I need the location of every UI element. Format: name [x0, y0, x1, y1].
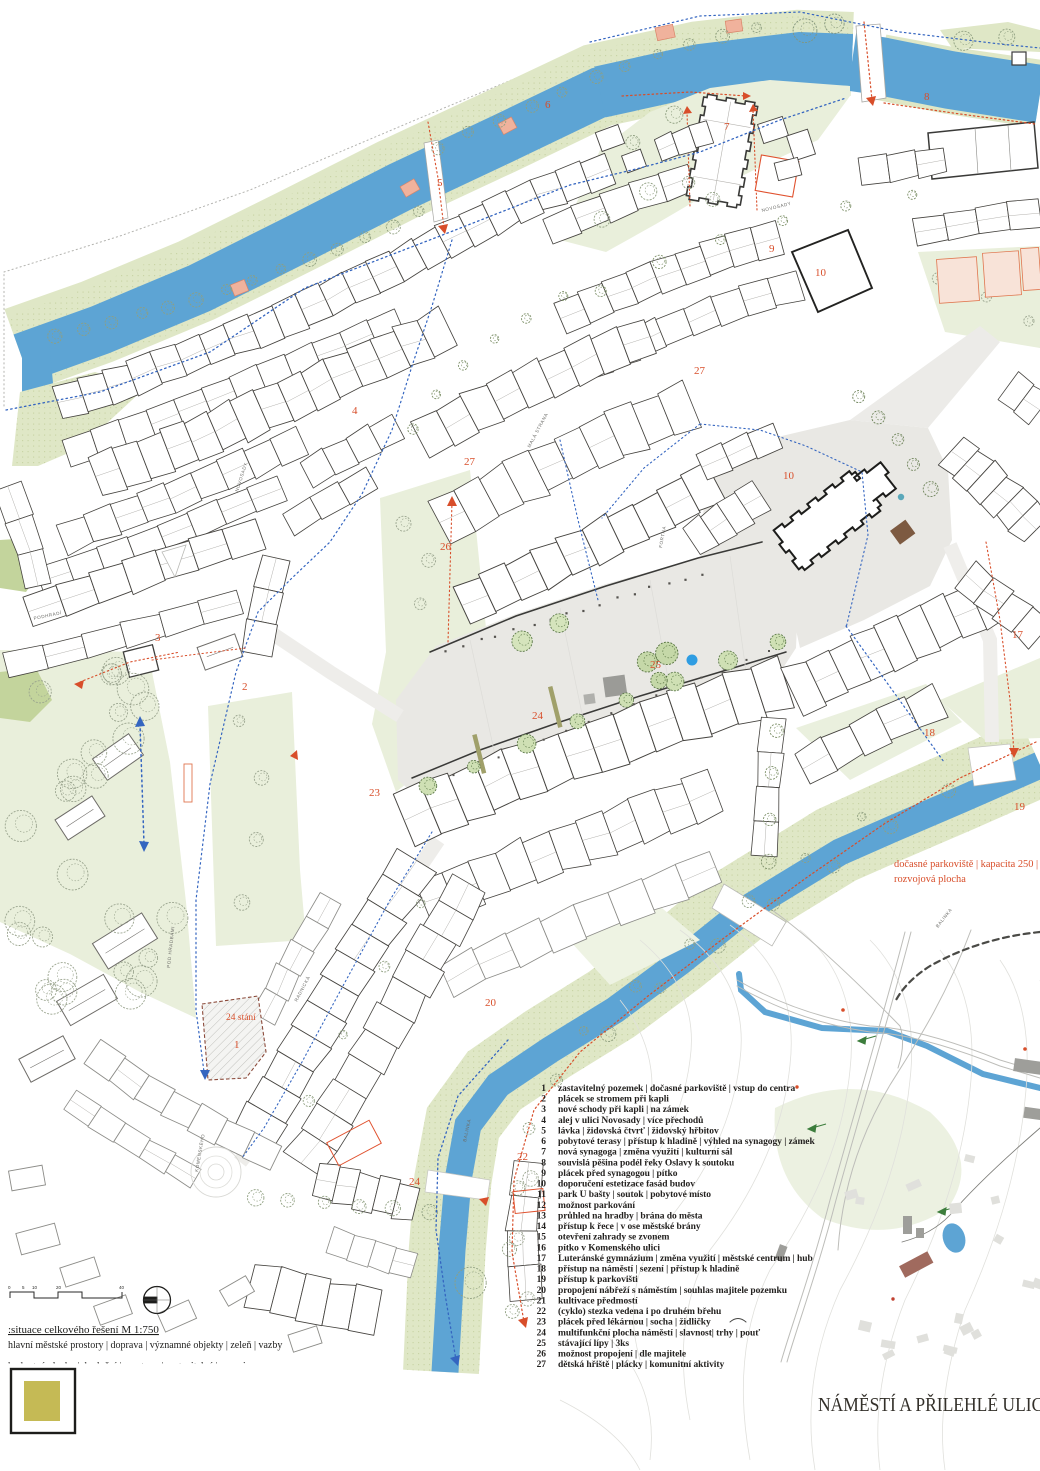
- svg-text:otevření zahrady se zvonem: otevření zahrady se zvonem: [558, 1233, 669, 1243]
- svg-text:park U bašty | soutok | pobyto: park U bašty | soutok | pobytové místo: [558, 1190, 711, 1200]
- svg-text:22: 22: [537, 1307, 547, 1317]
- svg-text:27: 27: [464, 456, 476, 468]
- svg-text:alej v ulici Novosady | více p: alej v ulici Novosady | více přechodů: [558, 1115, 704, 1126]
- svg-text:24 stání: 24 stání: [226, 1013, 256, 1023]
- svg-text:5: 5: [437, 177, 443, 189]
- svg-text:17: 17: [1012, 629, 1024, 641]
- svg-text:kultivace předmostí: kultivace předmostí: [558, 1296, 638, 1306]
- svg-text:27: 27: [537, 1360, 547, 1370]
- svg-text:8: 8: [541, 1158, 546, 1168]
- svg-text:15: 15: [537, 1233, 547, 1243]
- svg-text:5: 5: [541, 1127, 546, 1137]
- svg-text:6: 6: [545, 99, 551, 111]
- svg-text:19: 19: [537, 1275, 547, 1285]
- svg-text:pobytové terasy | přístup k hl: pobytové terasy | přístup k hladině | vý…: [558, 1137, 815, 1147]
- svg-text:2: 2: [541, 1095, 546, 1105]
- svg-text:plácek před lékárnou | socha |: plácek před lékárnou | socha | židličky: [558, 1318, 711, 1328]
- svg-text:23: 23: [537, 1318, 547, 1328]
- svg-text:13: 13: [537, 1211, 547, 1221]
- svg-text:24: 24: [409, 1176, 421, 1188]
- svg-text:26: 26: [537, 1350, 547, 1360]
- svg-text:souvislá pěšina podél řeky Osl: souvislá pěšina podél řeky Oslavy k sout…: [558, 1158, 735, 1168]
- svg-text:multifunkční plocha náměstí |: multifunkční plocha náměstí | slavnost| …: [558, 1328, 760, 1338]
- svg-text:22: 22: [517, 1151, 528, 1163]
- svg-text:dětská hřiště | plácky | komun: dětská hřiště | plácky | komunitní aktiv…: [558, 1360, 724, 1370]
- svg-text:plácek se stromem při kapli: plácek se stromem při kapli: [558, 1095, 669, 1105]
- svg-text:Luteránské gymnázium | změna v: Luteránské gymnázium | změna využití | m…: [558, 1254, 813, 1264]
- svg-text:27: 27: [694, 365, 706, 377]
- svg-text:4: 4: [541, 1116, 546, 1126]
- svg-text:přístup k řece | v ose městské: přístup k řece | v ose městské brány: [558, 1222, 701, 1232]
- svg-text:16: 16: [537, 1243, 547, 1253]
- svg-text:2: 2: [242, 681, 248, 693]
- svg-text:10: 10: [537, 1180, 547, 1190]
- svg-text:nové schody při kapli | na zám: nové schody při kapli | na zámek: [558, 1105, 690, 1115]
- svg-text:25: 25: [650, 659, 662, 671]
- svg-text:18: 18: [924, 727, 936, 739]
- svg-text:dočasné parkoviště | kapacita: dočasné parkoviště | kapacita 250 |: [894, 859, 1038, 870]
- svg-text:11: 11: [537, 1190, 546, 1200]
- svg-text:20: 20: [56, 1285, 62, 1290]
- svg-text:21: 21: [537, 1296, 547, 1306]
- svg-text:17: 17: [537, 1254, 547, 1264]
- svg-text:4: 4: [352, 405, 358, 417]
- svg-text:25: 25: [537, 1339, 547, 1349]
- svg-text:NÁMĚSTÍ A PŘILEHLÉ ULICE: NÁMĚSTÍ A PŘILEHLÉ ULICE: [818, 1393, 1040, 1416]
- svg-text:přístup k parkovišti: přístup k parkovišti: [558, 1275, 638, 1285]
- svg-text:plácek před synagogou | pítko: plácek před synagogou | pítko: [558, 1169, 678, 1179]
- svg-text:10: 10: [815, 267, 827, 279]
- svg-text:23: 23: [369, 787, 381, 799]
- svg-text:1: 1: [234, 1039, 240, 1051]
- svg-text:průhled na hradby | brána do m: průhled na hradby | brána do města: [558, 1210, 703, 1221]
- svg-text:pítko v Komenského ulici: pítko v Komenského ulici: [558, 1243, 660, 1253]
- svg-text:18: 18: [537, 1265, 547, 1275]
- svg-text:19: 19: [1014, 801, 1026, 813]
- svg-text:1: 1: [541, 1084, 546, 1094]
- svg-text:7: 7: [724, 121, 730, 133]
- svg-text:24: 24: [532, 710, 544, 722]
- svg-text:zastavitelný pozemek | dočasné: zastavitelný pozemek | dočasné parkovišt…: [558, 1084, 795, 1094]
- svg-text:24: 24: [537, 1328, 547, 1338]
- svg-text::situace celkového řešení M 1:: :situace celkového řešení M 1:750: [8, 1324, 159, 1336]
- svg-text:rozvojová plocha: rozvojová plocha: [894, 874, 966, 885]
- svg-text:9: 9: [769, 243, 775, 255]
- svg-text:hlavní městské prostory | dopr: hlavní městské prostory | doprava | význ…: [8, 1340, 282, 1351]
- svg-text:doporučení estetizace fasád bu: doporučení estetizace fasád budov: [558, 1180, 695, 1190]
- svg-text:možnost parkování: možnost parkování: [558, 1201, 635, 1211]
- svg-text:12: 12: [537, 1201, 547, 1211]
- svg-text:propojení nábřeží s náměstím |: propojení nábřeží s náměstím | souhlas m…: [558, 1286, 788, 1296]
- svg-text:9: 9: [541, 1169, 546, 1179]
- svg-text:3: 3: [541, 1105, 546, 1115]
- svg-text:8: 8: [924, 91, 930, 103]
- svg-text:26: 26: [440, 541, 452, 553]
- svg-text:6: 6: [541, 1137, 546, 1147]
- svg-text:10: 10: [783, 470, 795, 482]
- svg-text:přístup na náměstí | sezení |: přístup na náměstí | sezení | přístup k …: [558, 1265, 739, 1275]
- svg-text:možnost propojení | dle majite: možnost propojení | dle majitele: [558, 1350, 686, 1360]
- svg-text:3: 3: [155, 632, 161, 644]
- svg-text:nová synagoga | změna využití: nová synagoga | změna využití | kulturní…: [558, 1148, 733, 1158]
- svg-text:40: 40: [119, 1285, 125, 1290]
- svg-text:20: 20: [485, 997, 497, 1009]
- svg-text:20: 20: [537, 1286, 547, 1296]
- svg-text:10: 10: [32, 1285, 38, 1290]
- svg-text:(cyklo) stezka vedena i po dru: (cyklo) stezka vedena i po druhém břehu: [558, 1306, 722, 1317]
- svg-text:14: 14: [537, 1222, 547, 1232]
- svg-text:stávající lípy | 3ks: stávající lípy | 3ks: [558, 1339, 629, 1349]
- svg-text:7: 7: [541, 1148, 546, 1158]
- svg-text:lávka | židovská čtvrť | židov: lávka | židovská čtvrť | židovský hřbito…: [558, 1127, 719, 1137]
